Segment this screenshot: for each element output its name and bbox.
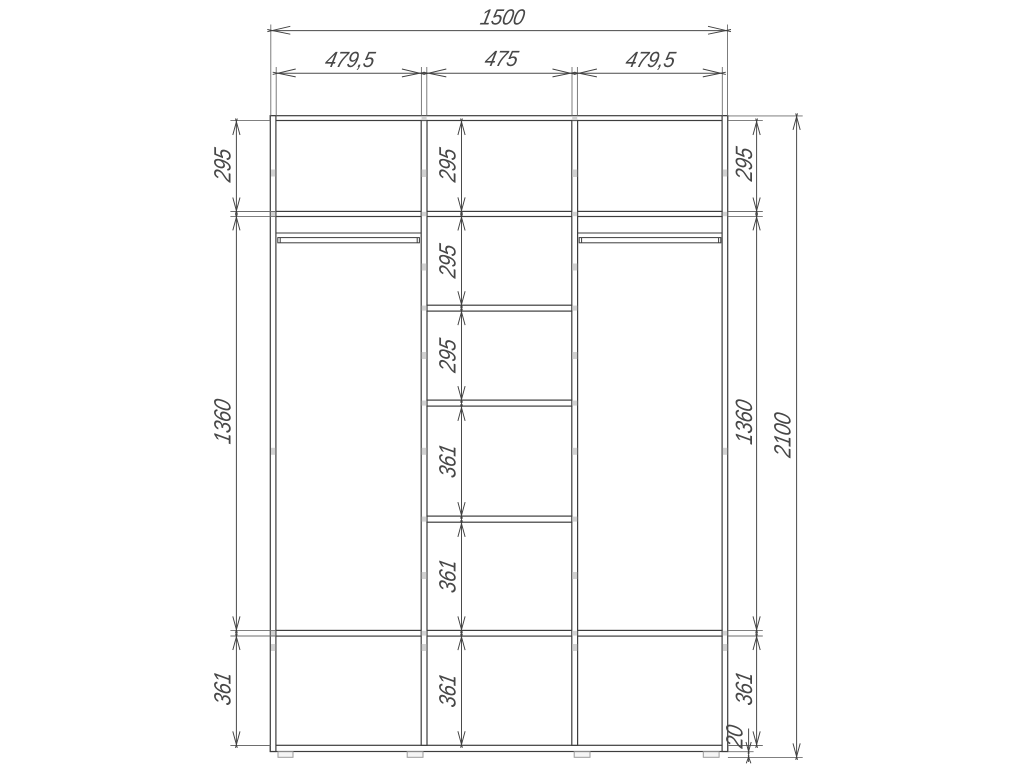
- svg-text:1360: 1360: [209, 396, 236, 446]
- svg-text:295: 295: [434, 241, 461, 281]
- svg-text:479,5: 479,5: [624, 47, 678, 72]
- svg-text:2100: 2100: [769, 410, 796, 460]
- svg-text:1360: 1360: [731, 397, 758, 447]
- svg-text:361: 361: [731, 670, 758, 708]
- svg-text:295: 295: [434, 336, 461, 376]
- svg-text:295: 295: [209, 145, 236, 185]
- svg-text:475: 475: [483, 46, 521, 71]
- svg-text:295: 295: [434, 145, 461, 185]
- svg-text:361: 361: [434, 557, 461, 595]
- svg-text:361: 361: [209, 670, 236, 708]
- svg-text:361: 361: [434, 672, 461, 710]
- svg-text:295: 295: [731, 144, 758, 184]
- svg-text:479,5: 479,5: [323, 47, 377, 72]
- svg-text:1500: 1500: [478, 5, 527, 30]
- svg-text:361: 361: [434, 442, 461, 480]
